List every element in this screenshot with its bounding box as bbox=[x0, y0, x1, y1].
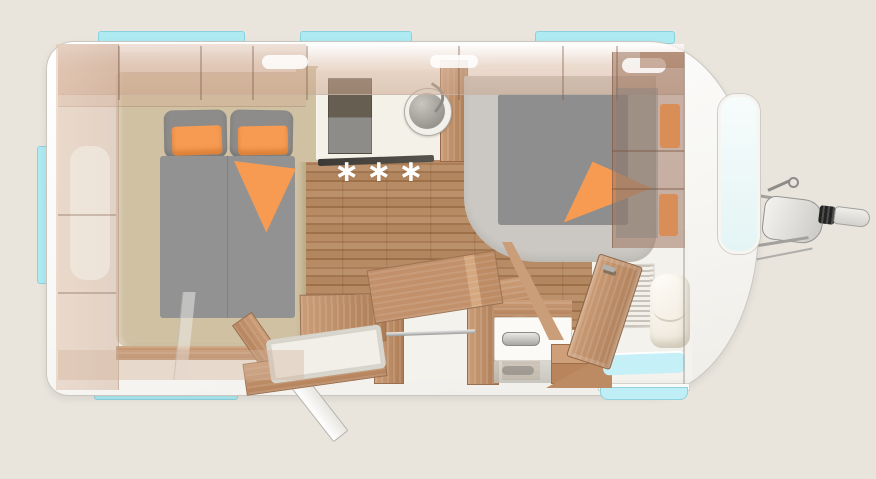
wardrobe-cushion-1 bbox=[660, 104, 680, 148]
wardrobe-top-shelf bbox=[640, 52, 684, 68]
locker-divider-2 bbox=[200, 46, 202, 100]
washroom-door-handle bbox=[602, 264, 616, 273]
front-window bbox=[718, 94, 760, 254]
rear-bed-cushion-left bbox=[172, 125, 223, 156]
ceiling-light-1 bbox=[262, 55, 308, 69]
entry-step-window bbox=[600, 387, 688, 400]
toilet-fold-line bbox=[653, 296, 687, 322]
overhead-lockers-rear-bottom bbox=[58, 350, 304, 380]
wardrobe-shelf-line-2 bbox=[612, 188, 684, 190]
kitchen-floor-marks: ∗∗∗ bbox=[334, 154, 424, 186]
wardrobe-cushion-2 bbox=[659, 194, 678, 236]
entry-mat bbox=[603, 351, 686, 376]
drawer-handle bbox=[502, 332, 540, 346]
front-wall-line bbox=[683, 54, 685, 384]
front-bed-mattress bbox=[498, 94, 628, 225]
rear-bed-cushion-right bbox=[238, 126, 288, 156]
lever-hook bbox=[788, 177, 799, 188]
locker-divider-3 bbox=[252, 46, 254, 100]
left-window-through bbox=[70, 146, 110, 280]
floor-plan-canvas: ∗∗∗ bbox=[0, 0, 876, 479]
wardrobe-shelf-line-1 bbox=[612, 150, 684, 152]
wardrobe-mattress-through bbox=[616, 88, 658, 238]
ceiling-light-2 bbox=[430, 55, 478, 68]
locker-divider-4 bbox=[306, 46, 308, 100]
drawer-handle-reflection bbox=[502, 366, 534, 375]
left-shelf-line-2 bbox=[58, 292, 116, 294]
left-shelf-line-1 bbox=[58, 214, 116, 216]
locker-divider-1 bbox=[118, 46, 120, 100]
locker-divider-6 bbox=[562, 46, 564, 100]
rear-mattress-seam bbox=[227, 156, 228, 318]
hitch-ball-cover bbox=[833, 206, 871, 228]
